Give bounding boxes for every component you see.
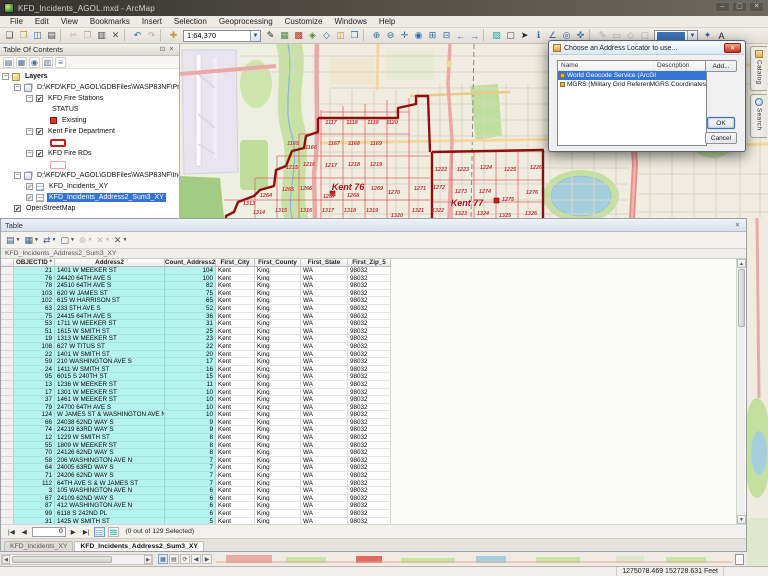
clear-selection-icon[interactable]: ▢ <box>504 29 517 42</box>
row-selector[interactable] <box>1 351 14 359</box>
table-row[interactable]: 79 24700 64TH AVE S 10 Kent King WA 9803… <box>1 404 746 412</box>
dock-tab-icon <box>755 98 763 106</box>
table-row[interactable]: 53 1711 W MEEKER ST 31 Kent King WA 9803… <box>1 320 746 328</box>
layer-label[interactable]: D:\KFD\KFD_AGOL\GDBFiles\WASP83NF\Incide… <box>35 171 179 180</box>
map-grid-label: 1266 <box>300 186 312 192</box>
next-record-icon[interactable]: ▶ <box>69 528 78 536</box>
scrollbar-thumb[interactable] <box>12 556 112 563</box>
layer-label[interactable]: Existing <box>60 116 89 125</box>
row-selector[interactable] <box>1 373 14 381</box>
toc-layer-item[interactable]: Existing <box>0 115 179 126</box>
zoom-to-selected-icon[interactable]: ⊕▼ <box>78 234 94 247</box>
sep[interactable] <box>483 29 488 42</box>
table-row[interactable]: 55 1809 W MEEKER ST 8 Kent King WA 98032 <box>1 442 746 450</box>
layer-checkbox[interactable] <box>36 150 43 157</box>
layer-label[interactable]: KFD_Incidents_Address2_Sum3_XY <box>47 193 166 202</box>
layer-checkbox[interactable] <box>36 128 43 135</box>
select-features-icon[interactable]: ▧ <box>490 29 503 42</box>
row-selector[interactable] <box>1 267 14 275</box>
status-bar: 1275078.469 152728.631 Feet <box>0 566 768 576</box>
row-selector[interactable] <box>1 305 14 313</box>
row-selector[interactable] <box>1 411 14 419</box>
table-row[interactable]: 13 1236 W MEEKER ST 11 Kent King WA 9803… <box>1 381 746 389</box>
table-row[interactable]: 112 64TH AVE S & W JAMES ST 7 Kent King … <box>1 480 746 488</box>
map-grid-label: 1265 <box>282 187 294 193</box>
toc-layer-item[interactable] <box>0 159 179 170</box>
row-selector[interactable] <box>1 510 14 518</box>
close-icon[interactable]: ✕ <box>724 43 741 53</box>
locator-item-icon <box>560 82 565 87</box>
record-number-input[interactable] <box>32 527 66 537</box>
row-selector[interactable] <box>1 343 14 351</box>
table-row[interactable]: 108 627 W TITUS ST 22 Kent King WA 98032 <box>1 343 746 351</box>
catalog-window-icon[interactable]: ◫ <box>334 29 347 42</box>
map-bottom-strip: ◀ ▶ ▦ ▤ ⟳ ◀ ▶ <box>0 552 747 566</box>
map-grid-label: 1270 <box>388 190 400 196</box>
row-selector[interactable] <box>1 290 14 298</box>
scrollbar-thumb[interactable] <box>738 269 745 327</box>
table-of-contents-panel: Table Of Contents ⊡ ✕ ▤▦◉▥≡ Layers D:\KF… <box>0 44 180 218</box>
toc-layer-item[interactable]: OpenStreetMap <box>0 203 179 214</box>
identify-icon[interactable]: ℹ <box>532 29 545 42</box>
menu-item[interactable]: View <box>55 16 84 28</box>
layer-icon <box>36 194 44 202</box>
show-selected-records-icon[interactable] <box>108 527 119 537</box>
toc-tree: Layers D:\KFD\KFD_AGOL\GDBFiles\WASP83NF… <box>0 69 179 218</box>
layer-label[interactable]: STATUS <box>50 105 81 114</box>
refresh-view-icon[interactable]: ⟳ <box>180 554 190 564</box>
row-selector[interactable] <box>1 313 14 321</box>
table-row[interactable]: 75 24415 64TH AVE S 36 Kent King WA 9803… <box>1 313 746 321</box>
map-grid-label: 1216 <box>303 162 315 168</box>
layer-checkbox[interactable] <box>14 205 21 212</box>
print-icon[interactable]: ▤ <box>45 29 58 42</box>
sep[interactable] <box>160 29 165 42</box>
table-row[interactable]: 70 24126 62ND WAY S 8 Kent King WA 98032 <box>1 449 746 457</box>
toc-layer-item[interactable]: KFD_Incidents_Address2_Sum3_XY <box>0 192 179 203</box>
menu-item[interactable]: Insert <box>136 16 168 28</box>
coordinate-readout: 1275078.469 152728.631 Feet <box>616 567 724 576</box>
layer-icon <box>24 172 32 180</box>
fixed-zoom-in-icon[interactable]: ⊞ <box>426 29 439 42</box>
table-row[interactable]: 71 24206 62ND WAY S 7 Kent King WA 98032 <box>1 472 746 480</box>
row-selector[interactable] <box>1 419 14 427</box>
record-navigation-bar: |◀ ◀ ▶ ▶| (0 out of 129 Selected) <box>1 524 746 538</box>
menu-item[interactable]: Selection <box>168 16 213 28</box>
map-grid-label: 1224 <box>480 165 492 171</box>
layer-symbol[interactable] <box>50 139 66 147</box>
table-row[interactable]: 99 6118 S 242ND PL 6 Kent King WA 98032 <box>1 510 746 518</box>
pause-drawing-icon[interactable]: ◀ <box>191 554 201 564</box>
list-column-header[interactable]: Description <box>654 61 694 70</box>
table-window-title: Table <box>5 221 733 230</box>
row-selector[interactable] <box>1 472 14 480</box>
maximize-icon[interactable] <box>732 2 747 12</box>
map-grid-label: 1313 <box>243 201 255 207</box>
dock-tab[interactable]: Search <box>750 94 767 139</box>
row-selector[interactable] <box>1 457 14 465</box>
pin-icon[interactable]: ⊡ <box>158 45 167 54</box>
toc-layer-item[interactable]: KFD Fire Stations <box>0 93 179 104</box>
map-grid-label: 1276 <box>526 190 538 196</box>
expander-icon[interactable] <box>14 172 21 179</box>
sep[interactable] <box>124 29 129 42</box>
column-header[interactable]: Count_Address2 <box>165 259 216 267</box>
zoom-out-icon[interactable]: ⊖ <box>384 29 397 42</box>
map-grid-label: Kent 76 <box>332 182 365 192</box>
map-grid-label: 1219 <box>370 162 382 168</box>
arcmap-app-icon <box>4 3 14 13</box>
row-selector[interactable] <box>1 297 14 305</box>
map-grid-label: 1167 <box>328 141 340 147</box>
list-column-header[interactable]: Name <box>558 61 654 70</box>
zoom-in-icon[interactable]: ⊕ <box>370 29 383 42</box>
map-grid-label: 1268 <box>347 193 359 199</box>
toc-layer-item[interactable] <box>0 137 179 148</box>
map-grid-label: 1168 <box>348 141 360 147</box>
layer-label[interactable]: Kent Fire Department <box>46 127 117 136</box>
layer-label[interactable]: KFD Fire RDs <box>46 149 94 158</box>
list-by-source-icon[interactable]: ▦ <box>16 57 27 68</box>
layer-label[interactable]: D:\KFD\KFD_AGOL\GDBFiles\WASP83NF\Protec… <box>35 83 179 92</box>
toc-layer-item[interactable]: KFD_Incidents_XY <box>0 181 179 192</box>
table-row[interactable]: 37 1461 W MEEKER ST 10 Kent King WA 9803… <box>1 396 746 404</box>
toc-layer-item[interactable]: D:\KFD\KFD_AGOL\GDBFiles\WASP83NF\Protec… <box>0 82 179 93</box>
layer-icon <box>24 84 32 92</box>
map-grid-label: 1215 <box>286 165 298 171</box>
layer-label[interactable]: KFD Fire Stations <box>46 94 105 103</box>
table-options-icon[interactable]: ▤▼ <box>5 234 21 247</box>
search-window-icon[interactable]: ❒ <box>348 29 361 42</box>
locator-list-item[interactable]: World Geocode Service (ArcGIS Online) <box>558 71 706 80</box>
close-icon[interactable]: ✕ <box>733 221 742 230</box>
table-row[interactable]: 17 1301 W MEEKER ST 10 Kent King WA 9803… <box>1 389 746 397</box>
dock-tab-icon <box>755 50 763 58</box>
clear-selection-icon[interactable]: ▢▼ <box>59 234 75 247</box>
map-grid-label: 1166 <box>305 145 317 151</box>
toc-title: Table Of Contents <box>3 45 158 54</box>
arctoolbox-icon[interactable]: ▩ <box>292 29 305 42</box>
title-bar[interactable]: KFD_Incidents_AGOL.mxd - ArcMap <box>0 0 768 16</box>
layout-view-icon[interactable]: ▤ <box>169 554 179 564</box>
row-selector[interactable] <box>1 275 14 283</box>
column-header[interactable]: Address2 <box>55 259 165 267</box>
row-selector[interactable] <box>1 335 14 343</box>
map-grid-label: 1120 <box>386 120 398 126</box>
menu-item[interactable]: Customize <box>279 16 329 28</box>
row-selector[interactable] <box>1 404 14 412</box>
last-record-icon[interactable]: ▶| <box>81 528 92 536</box>
row-selector[interactable] <box>1 495 14 503</box>
row-selector[interactable] <box>1 328 14 336</box>
go-forward-extent-icon[interactable]: → <box>468 29 481 42</box>
scroll-up-icon[interactable]: ▲ <box>737 259 746 268</box>
list-by-selection-icon[interactable]: ▥ <box>42 57 53 68</box>
map-grid-label: 1119 <box>367 120 378 126</box>
symbol-swatch <box>657 32 685 40</box>
table-row[interactable]: 21 1401 W MEEKER ST 104 Kent King WA 980… <box>1 267 746 275</box>
fixed-zoom-out-icon[interactable]: ⊟ <box>440 29 453 42</box>
table-row[interactable]: 87 412 WASHINGTON AVE N 6 Kent King WA 9… <box>1 502 746 510</box>
delete-icon[interactable]: ✕ <box>109 29 122 42</box>
expander-icon[interactable] <box>2 73 9 80</box>
table-row[interactable]: 51 1615 W SMITH ST 25 Kent King WA 98032 <box>1 328 746 336</box>
map-grid-label: 1117 <box>325 120 336 126</box>
table-sheet-tab[interactable]: KFD_Incidents_Address2_Sum3_XY <box>74 541 203 551</box>
layer-icon <box>12 73 20 81</box>
selection-status: (0 out of 129 Selected) <box>125 528 194 535</box>
table-window-title-bar[interactable]: Table ✕ <box>1 219 746 232</box>
paste-icon[interactable]: ▥ <box>95 29 108 42</box>
toc-toolbar: ▤▦◉▥≡ <box>0 56 179 69</box>
show-all-records-icon[interactable] <box>94 527 105 537</box>
row-selector[interactable] <box>1 389 14 397</box>
table-toolbar: ▤▼▦▼⇄▼▢▼⊕▼✕▼✕▼ <box>1 232 746 249</box>
row-selector[interactable] <box>1 518 14 524</box>
map-grid-label: 1318 <box>344 208 356 214</box>
locator-list[interactable]: NameDescription World Geocode Service (A… <box>557 60 707 146</box>
map-grid-label: 1218 <box>348 162 360 168</box>
data-view-icon[interactable]: ▦ <box>158 554 168 564</box>
row-selector[interactable] <box>1 442 14 450</box>
address-locator-icon <box>553 44 561 52</box>
table-sheet-name: KFD_Incidents_Address2_Sum3_XY <box>1 249 746 259</box>
map-right-strip <box>747 218 768 566</box>
sep[interactable] <box>363 29 368 42</box>
table-row[interactable]: 31 1425 W SMITH ST 5 Kent King WA 98032 <box>1 518 746 524</box>
map-grid-label: 1217 <box>325 163 337 169</box>
arcmap-window: KFD_Incidents_AGOL.mxd - ArcMap FileEdit… <box>0 0 768 576</box>
cut-icon[interactable]: ✂ <box>67 29 80 42</box>
map-grid-label: 1118 <box>346 120 357 126</box>
new-map-icon[interactable]: ❏ <box>3 29 16 42</box>
column-header[interactable]: First_County <box>255 259 301 267</box>
map-grid-label: 1273 <box>455 189 467 195</box>
map-grid-label: 1275 <box>502 197 514 203</box>
map-horizontal-scrollbar[interactable]: ◀ ▶ <box>1 554 153 565</box>
map-grid-label: 1316 <box>300 208 312 214</box>
add-data-icon[interactable]: ✚ <box>167 29 180 42</box>
map-scale-input[interactable] <box>184 31 250 41</box>
scroll-right-icon[interactable]: ▶ <box>144 555 152 564</box>
map-grid-label: 1271 <box>414 186 426 192</box>
close-icon[interactable] <box>749 2 764 12</box>
menu-item[interactable]: Help <box>373 16 401 28</box>
expander-icon[interactable] <box>14 84 21 91</box>
table-row[interactable]: 67 24109 62ND WAY S 6 Kent King WA 98032 <box>1 495 746 503</box>
menu-item[interactable]: Geoprocessing <box>213 16 279 28</box>
table-row[interactable]: 124 W JAMES ST & WASHINGTON AVE N 10 Ken… <box>1 411 746 419</box>
layer-checkbox[interactable] <box>26 183 33 190</box>
map-grid-label: 1319 <box>366 208 378 214</box>
grid-vertical-scrollbar[interactable]: ▲ ▼ <box>736 259 745 524</box>
scroll-down-icon[interactable]: ▼ <box>737 515 746 524</box>
layer-label[interactable]: OpenStreetMap <box>24 204 77 213</box>
toc-header[interactable]: Table Of Contents ⊡ ✕ <box>0 44 179 56</box>
minimize-icon[interactable] <box>715 2 730 12</box>
table-row[interactable]: 63 233 5TH AVE S 52 Kent King WA 98032 <box>1 305 746 313</box>
map-sliver[interactable] <box>216 553 732 566</box>
row-selector[interactable] <box>1 502 14 510</box>
layer-label[interactable]: Layers <box>23 72 50 81</box>
table-row[interactable]: 24 1411 W SMITH ST 16 Kent King WA 98032 <box>1 366 746 374</box>
redo-icon[interactable]: ↷ <box>145 29 158 42</box>
map-grid-label: 1323 <box>455 211 467 217</box>
menu-item[interactable]: Edit <box>29 16 55 28</box>
attribute-table-window: Table ✕ ▤▼▦▼⇄▼▢▼⊕▼✕▼✕▼ KFD_Incidents_Add… <box>0 218 747 552</box>
select-elements-icon[interactable]: ➤ <box>518 29 531 42</box>
expander-icon[interactable] <box>26 95 33 102</box>
table-row[interactable]: 95 6015 S 240TH ST 15 Kent King WA 98032 <box>1 373 746 381</box>
map-grid-label: 1321 <box>412 208 424 214</box>
row-selector[interactable] <box>1 381 14 389</box>
locator-item-icon <box>560 73 565 78</box>
row-selector[interactable] <box>1 487 14 495</box>
table-row[interactable]: 74 24219 63RD WAY S 9 Kent King WA 98032 <box>1 426 746 434</box>
map-scale-combo[interactable]: ▼ <box>183 30 261 42</box>
undo-icon[interactable]: ↶ <box>131 29 144 42</box>
pan-icon[interactable]: ✛ <box>398 29 411 42</box>
go-back-extent-icon[interactable]: ← <box>454 29 467 42</box>
scroll-left-icon[interactable]: ◀ <box>2 555 10 564</box>
row-selector[interactable] <box>1 480 14 488</box>
previous-record-icon[interactable]: ◀ <box>20 528 29 536</box>
dialog-title-bar[interactable]: Choose an Address Locator to use... ✕ <box>550 42 744 55</box>
table-row[interactable]: 19 1313 W MEEKER ST 23 Kent King WA 9803… <box>1 335 746 343</box>
table-window-icon[interactable]: ▦ <box>278 29 291 42</box>
sep[interactable] <box>60 29 65 42</box>
cancel-button[interactable]: Cancel <box>705 132 737 144</box>
menu-item[interactable]: Windows <box>328 16 372 28</box>
attribute-grid[interactable]: OBJECTID *Address2Count_Address2First_Ci… <box>1 259 746 524</box>
expander-icon[interactable] <box>26 150 33 157</box>
list-by-visibility-icon[interactable]: ◉ <box>29 57 40 68</box>
row-selector[interactable] <box>1 358 14 366</box>
python-window-icon[interactable]: ◇ <box>320 29 333 42</box>
resume-drawing-icon[interactable]: ▶ <box>202 554 212 564</box>
map-grid-label: 1165 <box>287 141 299 147</box>
row-selector-header[interactable] <box>1 259 14 267</box>
page-icon <box>735 554 744 565</box>
view-toggle-buttons: ▦ ▤ ⟳ ◀ ▶ <box>158 554 212 564</box>
map-grid-label: 1269 <box>371 186 383 192</box>
delete-selected-icon[interactable]: ✕▼ <box>95 234 111 247</box>
map-grid-label: 1317 <box>322 208 334 214</box>
layer-checkbox[interactable] <box>36 95 43 102</box>
row-selector[interactable] <box>1 396 14 404</box>
map-grid-label: 1222 <box>435 167 447 173</box>
map-grid-label: 1264 <box>260 193 272 199</box>
close-icon[interactable]: ✕ <box>167 45 176 54</box>
locator-list-item[interactable]: MGRS (Military Grid Reference System) MG… <box>558 80 706 89</box>
layer-symbol[interactable] <box>50 161 66 169</box>
row-selector[interactable] <box>1 366 14 374</box>
chevron-down-icon[interactable]: ▼ <box>687 31 697 41</box>
layer-label[interactable]: KFD_Incidents_XY <box>47 182 110 191</box>
layer-checkbox[interactable] <box>26 194 33 201</box>
map-grid-label: 1267 <box>323 194 335 200</box>
map-grid-label: 1315 <box>275 208 287 214</box>
map-grid-label: 1169 <box>370 141 382 147</box>
table-row[interactable]: 22 1401 W SMITH ST 20 Kent King WA 98032 <box>1 351 746 359</box>
full-extent-icon[interactable]: ◉ <box>412 29 425 42</box>
menu-item[interactable]: File <box>4 16 29 28</box>
map-grid-label: 1223 <box>457 167 469 173</box>
map-grid-label: 1272 <box>433 185 445 191</box>
table-row[interactable]: 103 620 W JAMES ST 75 Kent King WA 98032 <box>1 290 746 298</box>
table-row[interactable]: 58 206 WASHINGTON AVE N 7 Kent King WA 9… <box>1 457 746 465</box>
menu-bar: FileEditViewBookmarksInsertSelectionGeop… <box>0 16 768 28</box>
close-table-icon[interactable]: ✕▼ <box>113 234 129 247</box>
column-header[interactable]: First_City <box>216 259 255 267</box>
column-header[interactable]: First_Zip_5 <box>348 259 391 267</box>
dock-tab[interactable]: Catalog <box>750 46 767 91</box>
toc-layer-item[interactable]: Layers <box>0 71 179 82</box>
ok-button[interactable]: OK <box>707 117 735 129</box>
row-selector[interactable] <box>1 282 14 290</box>
open-map-icon[interactable]: ❒ <box>17 29 30 42</box>
row-selector[interactable] <box>1 320 14 328</box>
grid-header-row: OBJECTID *Address2Count_Address2First_Ci… <box>1 259 391 267</box>
toc-options-icon[interactable]: ≡ <box>55 57 66 68</box>
table-row[interactable]: 64 24005 63RD WAY S 7 Kent King WA 98032 <box>1 464 746 472</box>
table-sheet-tab[interactable]: KFD_Incidents_XY <box>4 541 73 551</box>
toc-layer-item[interactable]: STATUS <box>0 104 179 115</box>
related-tables-icon[interactable]: ▦▼ <box>23 234 39 247</box>
layer-icon <box>36 183 44 191</box>
add-button[interactable]: Add... <box>705 60 737 72</box>
column-header[interactable]: First_State <box>301 259 348 267</box>
model-builder-icon[interactable]: ◈ <box>306 29 319 42</box>
map-grid-label: 1274 <box>479 189 491 195</box>
map-grid-label: 1226 <box>530 165 542 171</box>
map-grid-label: 1324 <box>477 211 489 217</box>
copy-icon[interactable]: ❐ <box>81 29 94 42</box>
table-row[interactable]: 76 24420 64TH AVE S 100 Kent King WA 980… <box>1 275 746 283</box>
row-selector[interactable] <box>1 449 14 457</box>
map-grid-label: Kent 77 <box>451 198 484 208</box>
expander-icon[interactable] <box>26 128 33 135</box>
dock-tab-strip: Catalog Search <box>750 46 767 138</box>
toc-layer-item[interactable]: Kent Fire Department <box>0 126 179 137</box>
save-icon[interactable]: ◫ <box>31 29 44 42</box>
table-row[interactable]: 59 210 WASHINGTON AVE S 17 Kent King WA … <box>1 358 746 366</box>
map-grid-label: 1322 <box>432 208 444 214</box>
editor-toolbar-icon[interactable]: ✎ <box>264 29 277 42</box>
address-locator-dialog: Choose an Address Locator to use... ✕ Na… <box>548 40 746 152</box>
toc-layer-item[interactable]: KFD Fire RDs <box>0 148 179 159</box>
toc-layer-item[interactable]: D:\KFD\KFD_AGOL\GDBFiles\WASP83NF\Incide… <box>0 170 179 181</box>
list-by-drawing-order-icon[interactable]: ▤ <box>3 57 14 68</box>
first-record-icon[interactable]: |◀ <box>6 528 17 536</box>
row-selector[interactable] <box>1 464 14 472</box>
table-row[interactable]: 66 24038 62ND WAY S 9 Kent King WA 98032 <box>1 419 746 427</box>
chevron-down-icon[interactable]: ▼ <box>250 31 260 41</box>
layer-symbol[interactable] <box>50 117 57 124</box>
row-selector[interactable] <box>1 426 14 434</box>
map-grid-label: 1314 <box>253 210 265 216</box>
window-title: KFD_Incidents_AGOL.mxd - ArcMap <box>18 4 155 13</box>
table-row[interactable]: 78 24510 64TH AVE S 82 Kent King WA 9803… <box>1 282 746 290</box>
table-row[interactable]: 102 615 W HARRISON ST 65 Kent King WA 98… <box>1 297 746 305</box>
table-row[interactable]: 3 105 WASHINGTON AVE N 6 Kent King WA 98… <box>1 487 746 495</box>
column-header[interactable]: OBJECTID * <box>14 259 55 267</box>
switch-selection-icon[interactable]: ⇄▼ <box>42 234 58 247</box>
row-selector[interactable] <box>1 434 14 442</box>
table-row[interactable]: 12 1229 W SMITH ST 8 Kent King WA 98032 <box>1 434 746 442</box>
menu-item[interactable]: Bookmarks <box>84 16 136 28</box>
map-grid-label: 1326 <box>525 211 537 217</box>
